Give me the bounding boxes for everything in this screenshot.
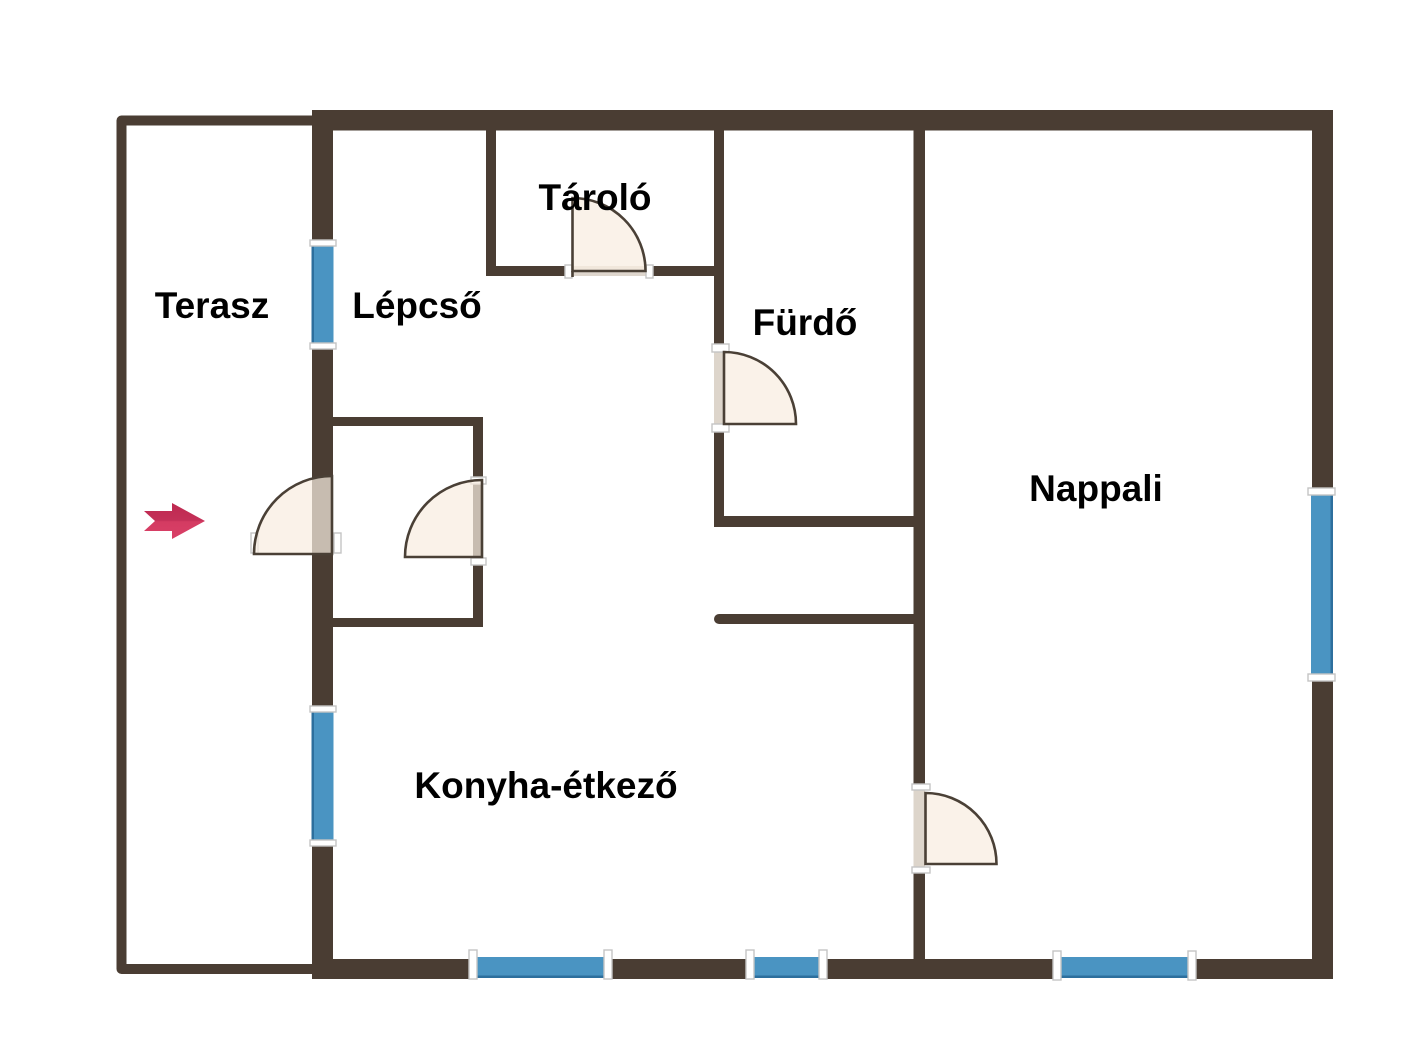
svg-text:Terasz: Terasz <box>155 285 270 326</box>
svg-text:Konyha-étkező: Konyha-étkező <box>414 765 677 806</box>
svg-text:Fürdő: Fürdő <box>753 302 858 343</box>
svg-text:Tároló: Tároló <box>538 177 651 218</box>
svg-text:Lépcső: Lépcső <box>352 285 482 326</box>
svg-text:Nappali: Nappali <box>1029 468 1163 509</box>
